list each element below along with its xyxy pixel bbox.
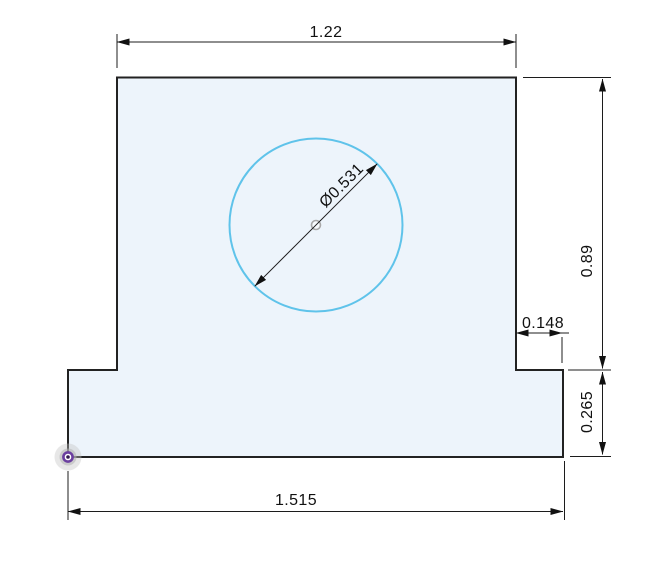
dimension-top-width[interactable]: 1.22 (117, 24, 516, 68)
dimension-value[interactable]: 0.148 (522, 315, 564, 332)
origin-point[interactable] (55, 444, 82, 471)
dimension-value[interactable]: 1.515 (275, 492, 317, 509)
sketch-drawing: 1.22 0.89 0.148 0.265 1.515 (0, 0, 672, 572)
dimension-base-height[interactable]: 0.265 (568, 370, 611, 457)
dimension-step-width[interactable]: 0.148 (516, 315, 569, 363)
dimension-value[interactable]: 0.265 (579, 391, 596, 433)
dimension-base-width[interactable]: 1.515 (68, 461, 565, 520)
dimension-value[interactable]: 0.89 (579, 245, 596, 278)
cad-sketch-canvas: 1.22 0.89 0.148 0.265 1.515 (0, 0, 672, 572)
dimension-value[interactable]: 1.22 (310, 24, 343, 41)
sketch-profile-region[interactable] (68, 78, 563, 458)
origin-center-dot (66, 455, 70, 459)
